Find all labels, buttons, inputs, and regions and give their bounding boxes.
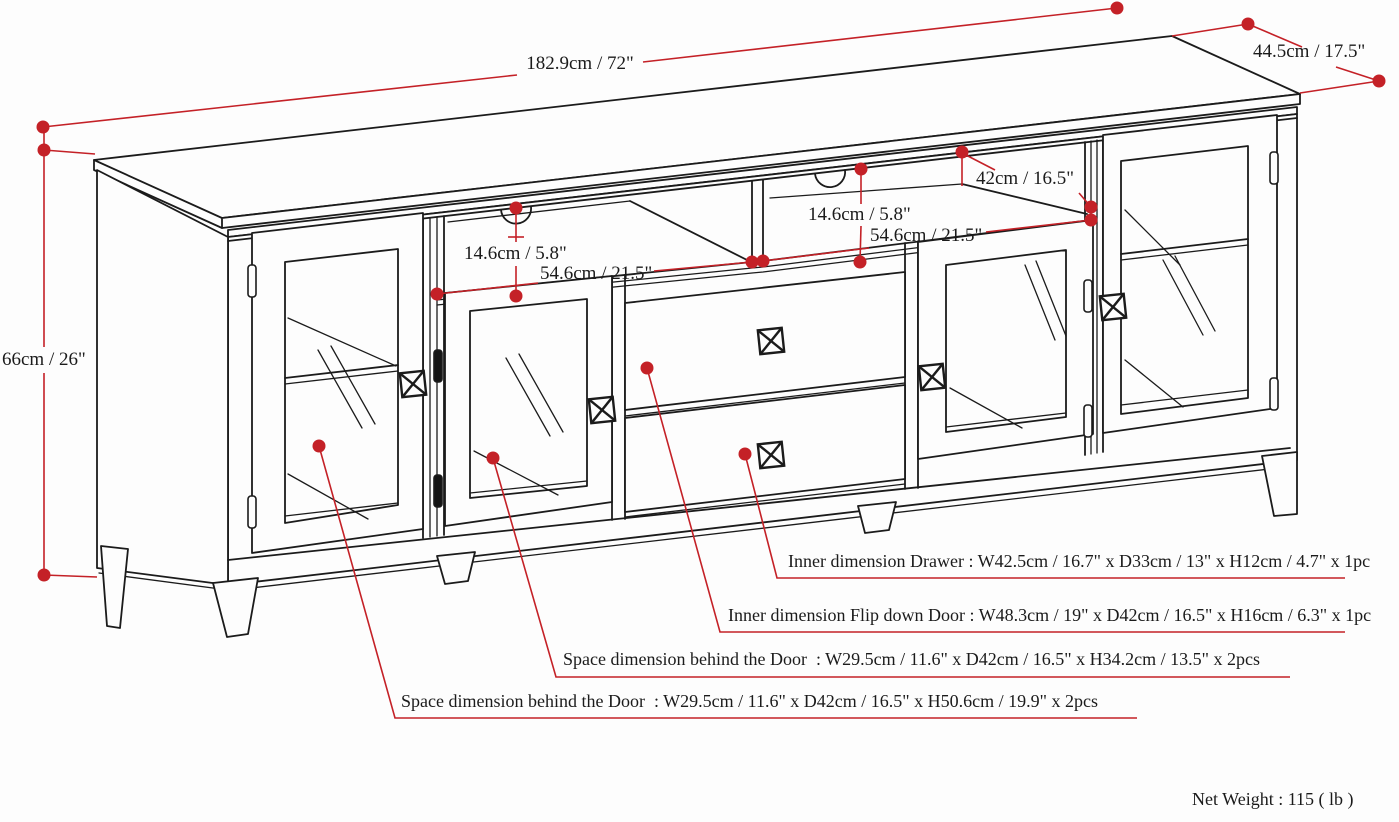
dimension-point bbox=[38, 144, 51, 157]
dim-shelf-height-right-label: 14.6cm / 5.8" bbox=[808, 205, 911, 225]
drawer-handle-icon bbox=[758, 328, 784, 354]
glass-door-2 bbox=[434, 276, 612, 526]
dimension-point bbox=[487, 452, 500, 465]
dimension-point bbox=[641, 362, 654, 375]
dimension-diagram-page: 182.9cm / 72" 44.5cm / 17.5" 66cm / 26" … bbox=[0, 0, 1399, 822]
glass-door-4 bbox=[1103, 115, 1278, 433]
glass-door-1 bbox=[248, 213, 423, 553]
dimension-point bbox=[1085, 201, 1098, 214]
dim-shelf-width-right-label: 54.6cm / 21.5" bbox=[870, 226, 982, 246]
dim-height-total-label: 66cm / 26" bbox=[2, 350, 86, 370]
dim-shelf-width-left-label: 54.6cm / 21.5" bbox=[540, 264, 652, 284]
dimension-point bbox=[1085, 214, 1098, 227]
hinge-icon bbox=[248, 496, 256, 528]
hinge-icon bbox=[1084, 405, 1092, 437]
leg-front-right bbox=[1262, 452, 1297, 516]
foot-middle-left bbox=[437, 552, 475, 584]
hinge-icon bbox=[434, 475, 442, 507]
door-handle-icon bbox=[589, 397, 615, 423]
flip-door-handle-icon bbox=[758, 442, 784, 468]
hinge-icon bbox=[434, 350, 442, 382]
dimension-point bbox=[956, 146, 969, 159]
dim-shelf-depth-label: 42cm / 16.5" bbox=[976, 169, 1074, 189]
dimension-point bbox=[746, 256, 759, 269]
hinge-icon bbox=[1270, 152, 1278, 184]
net-weight-label: Net Weight : 115 ( lb ) bbox=[1192, 790, 1354, 809]
foot-middle-right bbox=[858, 502, 896, 533]
hinge-icon bbox=[1084, 280, 1092, 312]
callout-space-upper: Space dimension behind the Door : W29.5c… bbox=[563, 650, 1260, 669]
dimension-point bbox=[38, 569, 51, 582]
dim-depth-total-label: 44.5cm / 17.5" bbox=[1253, 42, 1365, 62]
dimension-point bbox=[1111, 2, 1124, 15]
dimension-point bbox=[739, 448, 752, 461]
dim-width-total-label: 182.9cm / 72" bbox=[505, 54, 655, 74]
dimension-point bbox=[757, 255, 770, 268]
dimension-point bbox=[855, 163, 868, 176]
callout-flip-door: Inner dimension Flip down Door : W48.3cm… bbox=[728, 606, 1371, 625]
dimension-point bbox=[1373, 75, 1386, 88]
dimension-point bbox=[313, 440, 326, 453]
callout-drawer: Inner dimension Drawer : W42.5cm / 16.7"… bbox=[788, 552, 1370, 571]
dimension-point bbox=[510, 202, 523, 215]
callout-space-lower: Space dimension behind the Door : W29.5c… bbox=[401, 692, 1098, 711]
dim-shelf-height-left-label: 14.6cm / 5.8" bbox=[464, 244, 567, 264]
dimension-point bbox=[1242, 18, 1255, 31]
dimension-point bbox=[37, 121, 50, 134]
dimension-point bbox=[431, 288, 444, 301]
leg-front-left bbox=[213, 578, 258, 637]
dimension-point bbox=[854, 256, 867, 269]
hinge-icon bbox=[248, 265, 256, 297]
leg-back-left bbox=[101, 546, 128, 628]
hinge-icon bbox=[1270, 378, 1278, 410]
glass-door-3 bbox=[918, 220, 1093, 459]
door-handle-icon bbox=[919, 364, 945, 390]
door-handle-icon bbox=[1100, 294, 1126, 320]
door-handle-icon bbox=[400, 371, 426, 397]
dimension-point bbox=[510, 290, 523, 303]
